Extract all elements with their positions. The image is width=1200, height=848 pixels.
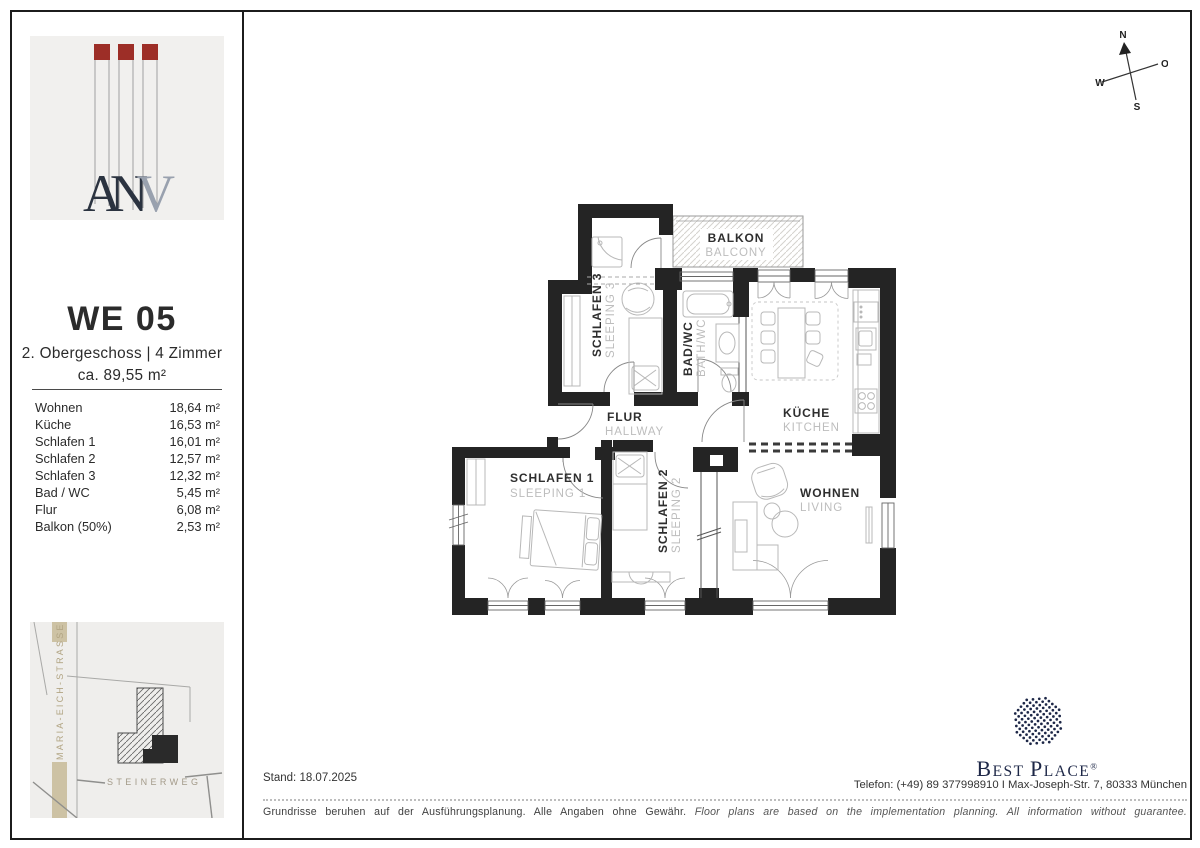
divider-line (32, 389, 222, 390)
disclaimer-line: Grundrisse beruhen auf der Ausführungspl… (263, 806, 1187, 818)
label-balkon-en: BALCONY (705, 247, 766, 259)
room-value: 12,57 m² (169, 450, 220, 467)
label-schlafen3-de: SCHLAFEN 3 (590, 273, 604, 357)
disclaimer-german: Grundrisse beruhen auf der Ausführungspl… (263, 806, 686, 818)
unit-total-area: ca. 89,55 m² (12, 367, 232, 385)
room-value: 6,08 m² (177, 501, 220, 518)
floor-plan-drawing: BALKON BALCONY SCHLAFEN 3 SLEEPING 3 BAD… (440, 195, 910, 625)
label-bad-en: BATH/WC (696, 319, 708, 377)
label-flur-de: FLUR (607, 410, 643, 424)
site-map-drawing: MARIA-EICH-STRASSE STEINERWEG (30, 622, 224, 818)
brand-letter: B (976, 756, 992, 781)
unit-floor: 2. Obergeschoss | 4 Zimmer (12, 345, 232, 363)
unit-title: WE 05 (12, 300, 232, 339)
table-row: Schlafen 212,57 m² (35, 450, 220, 467)
compass-s: S (1134, 102, 1141, 113)
sidebar-divider (242, 10, 244, 838)
room-label: Balkon (50%) (35, 518, 112, 535)
room-label: Schlafen 1 (35, 433, 95, 450)
plan-date: Stand: 18.07.2025 (263, 772, 357, 784)
street-label-vertical: MARIA-EICH-STRASSE (55, 622, 65, 760)
room-label: Küche (35, 416, 71, 433)
label-schlafen1-de: SCHLAFEN 1 (510, 471, 594, 485)
bestplace-globe-icon (1009, 692, 1067, 750)
logo-letter-light: V (137, 165, 175, 220)
label-schlafen2-en: SLEEPING 2 (671, 477, 683, 553)
registered-mark: ® (1090, 762, 1098, 772)
dotted-divider (263, 799, 1187, 801)
brand-letters: LACE (1044, 763, 1090, 780)
compass-w: W (1095, 78, 1105, 89)
label-kueche-en: KITCHEN (783, 422, 840, 434)
company-logo: ANV (30, 36, 224, 220)
brand-letter: P (1030, 756, 1044, 781)
room-label: Bad / WC (35, 484, 90, 501)
room-area-table: Wohnen18,64 m² Küche16,53 m² Schlafen 11… (35, 399, 220, 535)
label-flur-en: HALLWAY (605, 426, 664, 438)
disclaimer-english: Floor plans are based on the implementat… (695, 806, 1187, 818)
room-value: 18,64 m² (169, 399, 220, 416)
room-label: Wohnen (35, 399, 82, 416)
room-value: 16,53 m² (169, 416, 220, 433)
table-row: Flur6,08 m² (35, 501, 220, 518)
room-value: 2,53 m² (177, 518, 220, 535)
compass-o: O (1161, 59, 1168, 70)
anv-logo-icon: ANV (30, 36, 224, 220)
label-schlafen3-en: SLEEPING 3 (605, 282, 617, 358)
wall-column-void (710, 455, 723, 466)
table-row: Bad / WC5,45 m² (35, 484, 220, 501)
label-balkon-de: BALKON (708, 231, 765, 245)
label-wohnen-de: WOHNEN (800, 486, 860, 500)
site-map: MARIA-EICH-STRASSE STEINERWEG (30, 622, 224, 818)
room-label: Schlafen 3 (35, 467, 95, 484)
unit-info: WE 05 2. Obergeschoss | 4 Zimmer ca. 89,… (12, 300, 232, 385)
table-row: Schlafen 116,01 m² (35, 433, 220, 450)
room-value: 16,01 m² (169, 433, 220, 450)
label-schlafen1-en: SLEEPING 1 (510, 488, 586, 500)
table-row: Küche16,53 m² (35, 416, 220, 433)
table-row: Balkon (50%)2,53 m² (35, 518, 220, 535)
brand-block: BEST PLACE® (950, 692, 1125, 782)
compass-icon: N O W S (1090, 26, 1168, 114)
label-wohnen-en: LIVING (800, 502, 843, 514)
room-label: Schlafen 2 (35, 450, 95, 467)
label-kueche-de: KÜCHE (783, 405, 830, 420)
brand-letters: EST (993, 763, 1025, 780)
contact-line: Telefon: (+49) 89 377998910 I Max-Joseph… (854, 779, 1187, 791)
floorplan-sheet: { "sidebar": { "logo": { "dark": "AN", "… (0, 0, 1200, 848)
label-schlafen2-de: SCHLAFEN 2 (656, 469, 670, 553)
street-label-horizontal: STEINERWEG (107, 777, 201, 787)
svg-text:ANV: ANV (83, 165, 175, 220)
table-row: Schlafen 312,32 m² (35, 467, 220, 484)
compass-n: N (1119, 30, 1126, 41)
room-label: Flur (35, 501, 57, 518)
room-value: 5,45 m² (177, 484, 220, 501)
label-bad-de: BAD/WC (681, 321, 695, 376)
table-row: Wohnen18,64 m² (35, 399, 220, 416)
room-value: 12,32 m² (169, 467, 220, 484)
